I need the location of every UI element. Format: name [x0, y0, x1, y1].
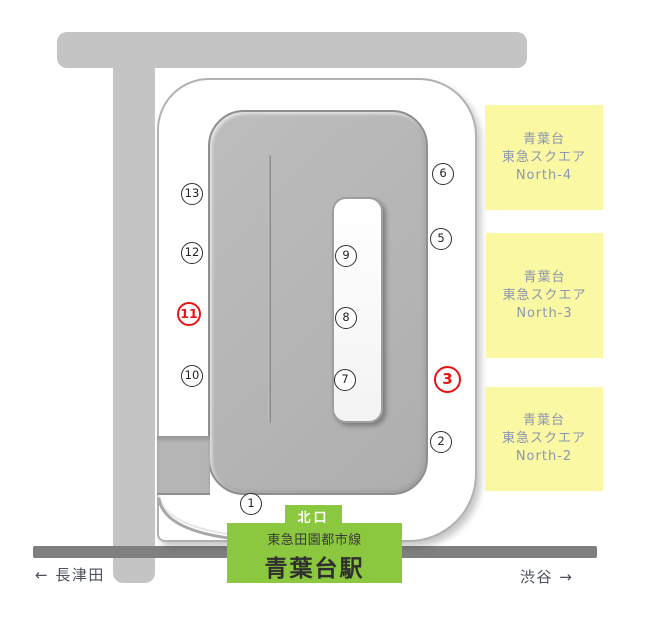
building-north-4-line3: North-4: [516, 167, 572, 185]
bus-stop-13-label: 13: [185, 188, 200, 200]
bus-stop-12: 12: [181, 242, 203, 264]
bus-stop-13: 13: [181, 183, 203, 205]
building-north-2-line2: 東急スクエア: [502, 430, 586, 448]
building-north-4-line2: 東急スクエア: [502, 149, 586, 167]
bus-stop-2: 2: [430, 431, 452, 453]
bus-stop-12-label: 12: [185, 247, 200, 259]
bus-stop-1-label: 1: [247, 498, 254, 510]
building-north-2: 青葉台 東急スクエア North-2: [485, 387, 603, 491]
road-west: [113, 50, 155, 583]
building-north-3-line1: 青葉台: [523, 269, 565, 287]
bus-stop-8-label: 8: [342, 312, 349, 324]
bus-stop-11: 11: [177, 302, 201, 326]
bus-stop-10-label: 10: [185, 370, 200, 382]
aobadai-station-bus-rotary-map: 1 2 3 5 6 7 8 9 10 11 12 13 青葉台 東急スクエア N…: [0, 0, 660, 631]
building-north-2-line1: 青葉台: [523, 412, 565, 430]
building-north-4: 青葉台 東急スクエア North-4: [485, 105, 603, 210]
bus-stop-7: 7: [334, 369, 356, 391]
bus-stop-3: 3: [434, 366, 461, 393]
building-north-2-line3: North-2: [516, 448, 572, 466]
building-north-3-line2: 東急スクエア: [502, 287, 586, 305]
bus-stop-1: 1: [240, 493, 262, 515]
direction-shibuya: 渋谷 →: [520, 566, 573, 587]
bus-stop-6-label: 6: [439, 168, 446, 180]
bus-stop-3-label: 3: [442, 372, 452, 387]
bus-stop-11-label: 11: [180, 308, 197, 321]
building-north-4-line1: 青葉台: [523, 131, 565, 149]
bus-stop-9: 9: [335, 245, 357, 267]
building-north-3: 青葉台 東急スクエア North-3: [486, 233, 603, 358]
bus-stop-8: 8: [335, 307, 357, 329]
bus-stop-6: 6: [432, 163, 454, 185]
rotary-island-extension: [157, 436, 210, 495]
direction-nagatsuta: ← 長津田: [35, 564, 105, 585]
bus-stop-9-label: 9: [342, 250, 349, 262]
railway-line-name: 東急田園都市線: [267, 529, 362, 548]
bus-stop-5: 5: [430, 228, 452, 250]
platform-divider-line: [268, 155, 271, 423]
bus-stop-5-label: 5: [437, 233, 444, 245]
bus-stop-7-label: 7: [341, 374, 348, 386]
station-box: 東急田園都市線 青葉台駅: [227, 523, 402, 583]
bus-stop-2-label: 2: [437, 436, 444, 448]
bus-stop-10: 10: [181, 365, 203, 387]
rotary-center-island: [208, 110, 428, 495]
station-name: 青葉台駅: [265, 549, 365, 583]
building-north-3-line3: North-3: [516, 305, 572, 323]
